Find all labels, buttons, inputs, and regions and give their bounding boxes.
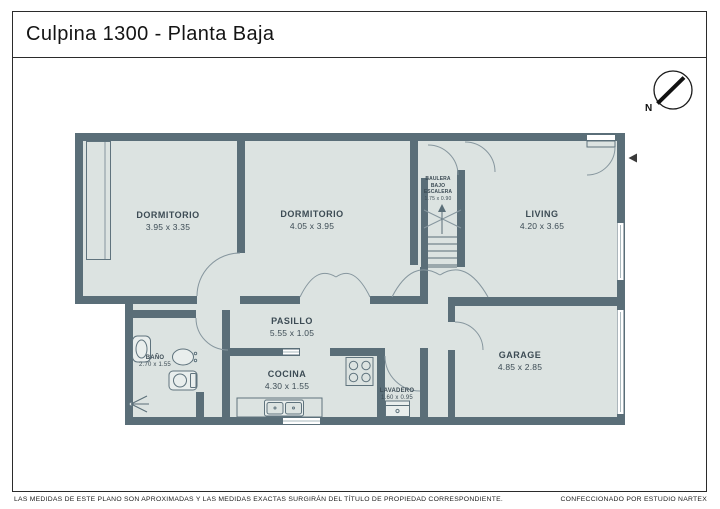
footer-disclaimer: LAS MEDIDAS DE ESTE PLANO SON APROXIMADA…	[14, 496, 503, 503]
compass-north-label: N	[645, 103, 652, 114]
footer: LAS MEDIDAS DE ESTE PLANO SON APROXIMADA…	[0, 496, 720, 508]
laundry-fixtures	[386, 401, 410, 417]
floorplan-sheet: Culpina 1300 - Planta Baja	[0, 0, 720, 509]
compass-icon: N	[645, 71, 692, 114]
closet	[87, 142, 111, 260]
floorplan-drawing: N	[0, 0, 720, 509]
entrance-arrow-icon	[629, 154, 638, 163]
footer-credit: CONFECCIONADO POR ESTUDIO NARTEX	[561, 496, 707, 503]
